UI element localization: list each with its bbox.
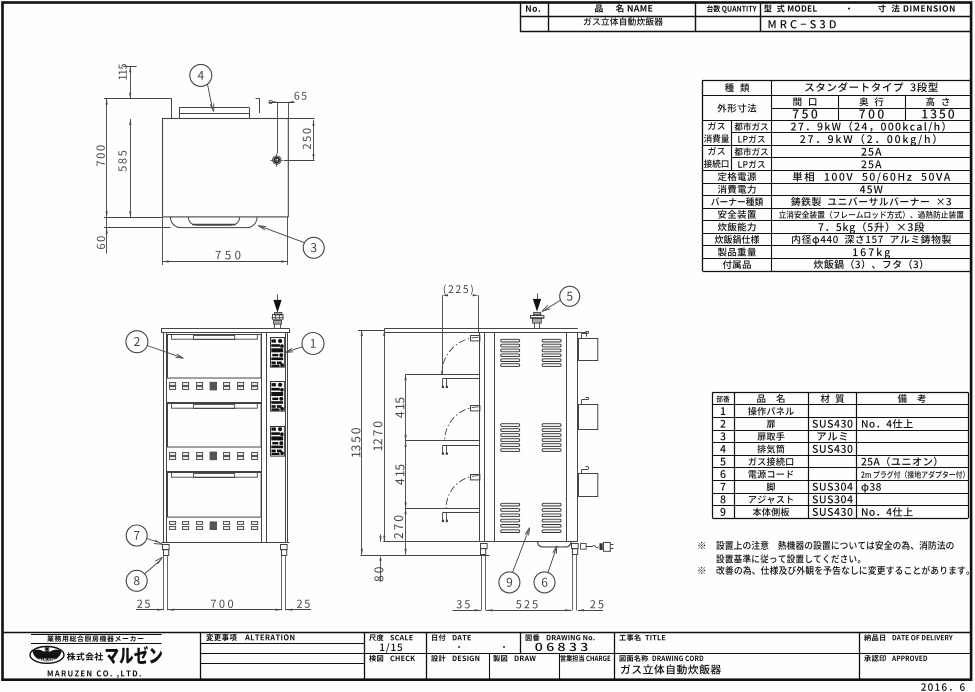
svg-text:MARUZEN: MARUZEN xyxy=(39,658,57,662)
